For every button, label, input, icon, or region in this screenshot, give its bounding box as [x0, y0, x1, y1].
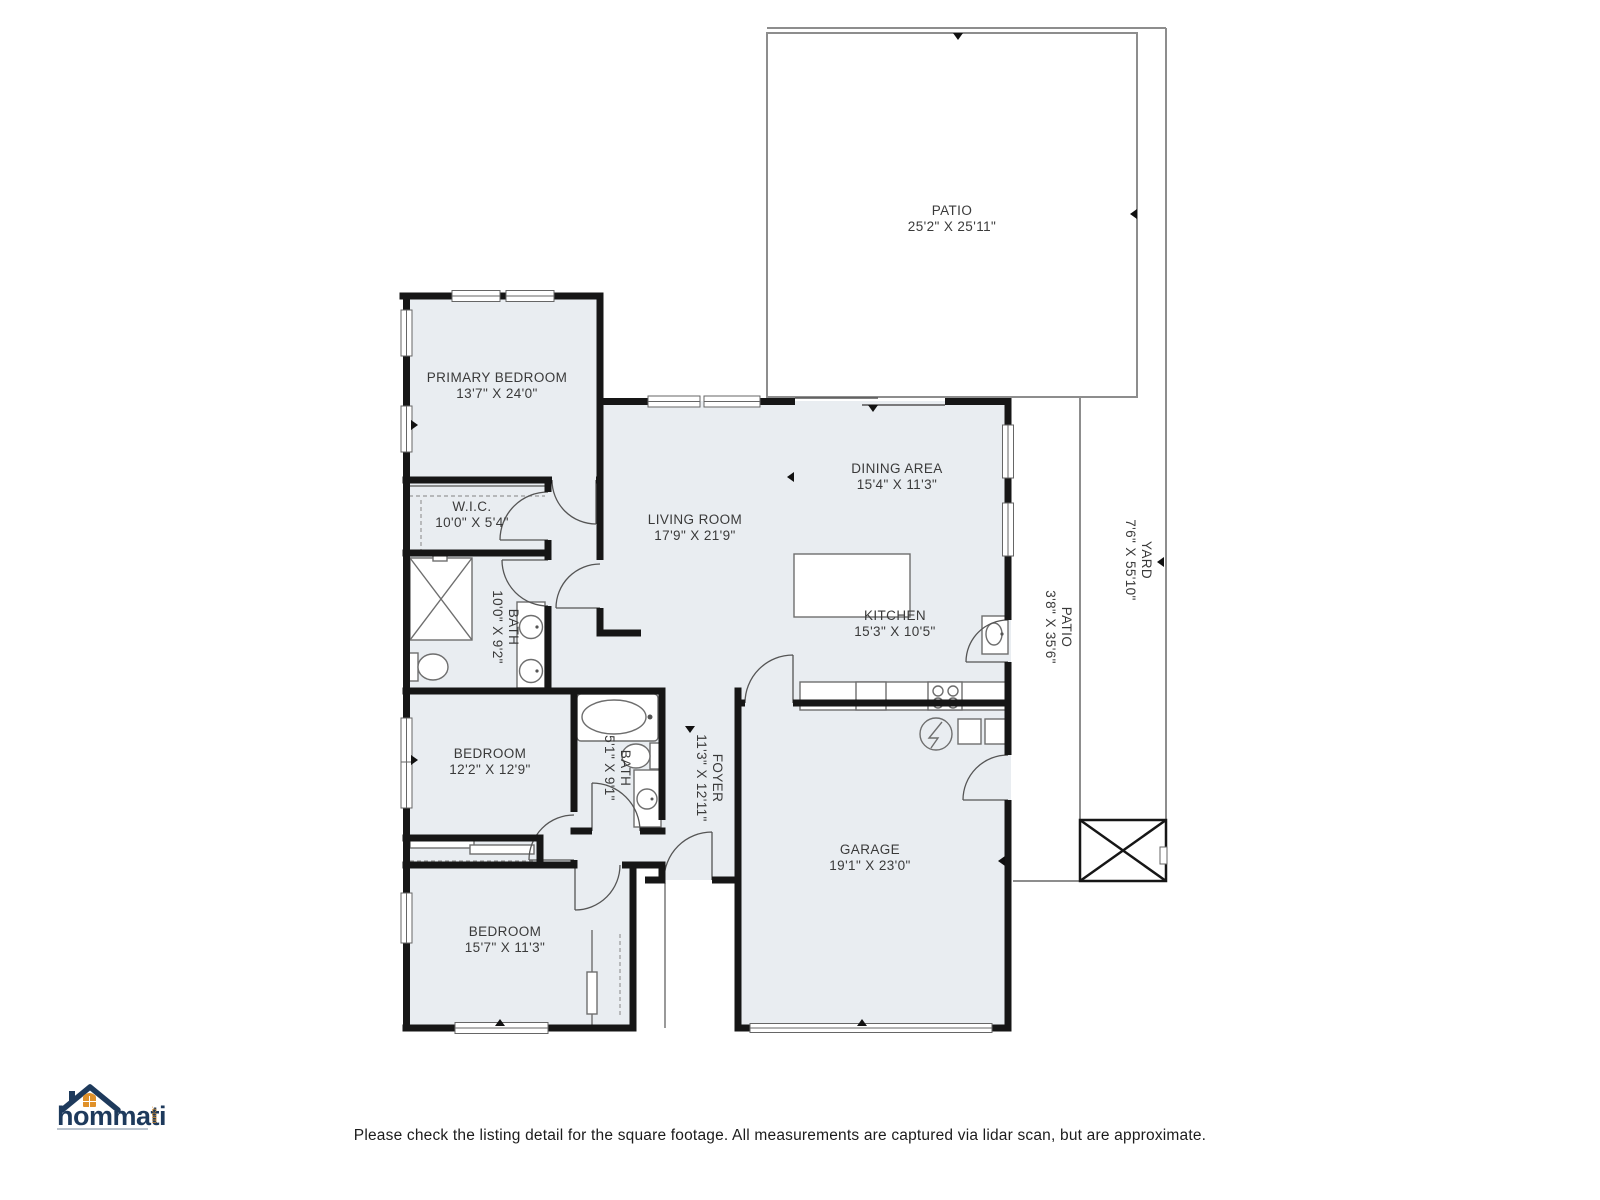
- label-garage-dims: 19'1" X 23'0": [829, 858, 911, 873]
- label-primary-bedroom-dims: 13'7" X 24'0": [456, 386, 538, 401]
- svg-text:FOYER: FOYER: [710, 754, 725, 803]
- label-yard: YARD 7'6" X 55'10": [1123, 519, 1154, 601]
- storage-unit: [958, 719, 981, 744]
- deck-cross: [1080, 820, 1167, 881]
- svg-text:10'0" X 9'2": 10'0" X 9'2": [490, 590, 505, 664]
- label-wic: W.I.C.: [452, 499, 491, 514]
- label-living-room-dims: 17'9" X 21'9": [654, 528, 736, 543]
- label-patio-top-dims: 25'2" X 25'11": [908, 219, 996, 234]
- label-bedroom-3: BEDROOM: [469, 924, 542, 939]
- label-dining-area-dims: 15'4" X 11'3": [857, 477, 938, 492]
- shower: [410, 554, 472, 640]
- disclaimer: Please check the listing detail for the …: [0, 1127, 1560, 1145]
- toilet-primary: [407, 653, 448, 681]
- floor-plan-svg: PATIO 25'2" X 25'11" PRIMARY BEDROOM 13'…: [0, 0, 1600, 1200]
- label-dining-area: DINING AREA: [851, 461, 942, 476]
- label-kitchen-dims: 15'3" X 10'5": [854, 624, 936, 639]
- hommati-logo: hommati .com: [57, 1087, 166, 1131]
- svg-text:YARD: YARD: [1139, 541, 1154, 579]
- svg-text:11'3" X 12'11": 11'3" X 12'11": [694, 734, 709, 821]
- label-bedroom-2: BEDROOM: [454, 746, 527, 761]
- svg-text:BATH: BATH: [506, 609, 521, 646]
- label-primary-bedroom: PRIMARY BEDROOM: [427, 370, 568, 385]
- brand-suffix: .com: [150, 1106, 159, 1124]
- bathtub: [577, 694, 658, 741]
- label-bedroom-2-dims: 12'2" X 12'9": [449, 762, 531, 777]
- svg-text:7'6" X 55'10": 7'6" X 55'10": [1123, 519, 1138, 601]
- label-garage: GARAGE: [840, 842, 900, 857]
- label-wic-dims: 10'0" X 5'4": [435, 515, 509, 530]
- label-living-room: LIVING ROOM: [648, 512, 742, 527]
- svg-text:5'1" X 9'1": 5'1" X 9'1": [602, 735, 617, 801]
- label-patio-side: PATIO 3'8" X 35'6": [1043, 590, 1074, 664]
- gate-symbol: [1160, 847, 1167, 864]
- label-bedroom-3-dims: 15'7" X 11'3": [465, 940, 546, 955]
- svg-text:PATIO: PATIO: [1059, 607, 1074, 648]
- floor-plan-page: { "footer": { "disclaimer": "Please chec…: [0, 0, 1600, 1200]
- label-kitchen: KITCHEN: [864, 608, 926, 623]
- label-patio-top: PATIO: [932, 203, 973, 218]
- svg-text:3'8" X 35'6": 3'8" X 35'6": [1043, 590, 1058, 664]
- svg-text:BATH: BATH: [618, 750, 633, 787]
